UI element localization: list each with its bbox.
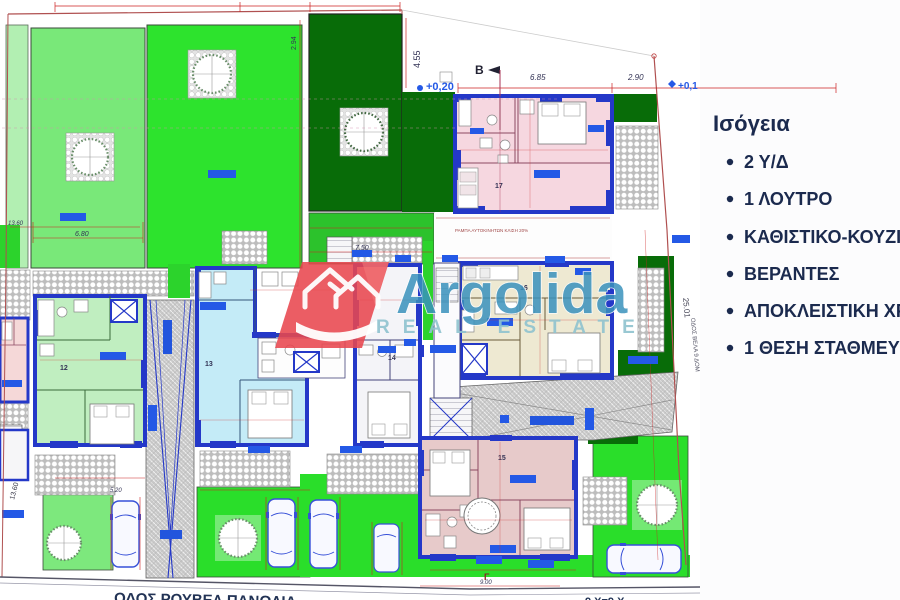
- svg-text:B: B: [475, 63, 484, 77]
- svg-text:+0,1: +0,1: [678, 81, 698, 92]
- svg-text:ΡΑΜΠΑ ΑΥΤΟΚΙΝΗΤΩΝ ΚΛΙΣΗ 20%: ΡΑΜΠΑ ΑΥΤΟΚΙΝΗΤΩΝ ΚΛΙΣΗ 20%: [455, 228, 528, 233]
- svg-text:17: 17: [495, 183, 503, 190]
- svg-text:25.01: 25.01: [681, 297, 692, 318]
- svg-text:Ισόγεια: Ισόγεια: [713, 111, 790, 136]
- svg-text:REAL ESTATE: REAL ESTATE: [376, 317, 648, 338]
- svg-text:4.55: 4.55: [412, 50, 422, 68]
- svg-text:13.60: 13.60: [8, 221, 24, 227]
- svg-text:ΚΑΘΙΣΤΙΚΟ-ΚΟΥΖΙΝΑ: ΚΑΘΙΣΤΙΚΟ-ΚΟΥΖΙΝΑ: [744, 227, 900, 247]
- svg-text:12: 12: [60, 365, 68, 372]
- svg-text:1 ΘΕΣΗ ΣΤΑΘΜΕΥΣΗΣ: 1 ΘΕΣΗ ΣΤΑΘΜΕΥΣΗΣ: [744, 338, 900, 358]
- svg-text:1 ΛΟΥΤΡΟ: 1 ΛΟΥΤΡΟ: [744, 189, 832, 209]
- svg-text:5.20: 5.20: [110, 488, 122, 494]
- svg-text:+0,20: +0,20: [426, 81, 454, 93]
- svg-text:13: 13: [205, 361, 213, 368]
- svg-text:2.94: 2.94: [291, 36, 298, 50]
- svg-text:15: 15: [498, 455, 506, 462]
- svg-text:2.90: 2.90: [627, 73, 644, 82]
- svg-text:6.85: 6.85: [530, 73, 546, 82]
- svg-text:ΑΠΟΚΛΕΙΣΤΙΚΗ ΧΡΗΣΗ: ΑΠΟΚΛΕΙΣΤΙΚΗ ΧΡΗΣΗ: [744, 301, 900, 321]
- svg-text:Γ: Γ: [484, 572, 490, 582]
- svg-text:2 Υ/Δ: 2 Υ/Δ: [744, 152, 789, 172]
- svg-text:6.80: 6.80: [75, 231, 89, 238]
- svg-text:ΒΕΡΑΝΤΕΣ: ΒΕΡΑΝΤΕΣ: [744, 264, 840, 284]
- svg-text:9 Χ=9 Χ: 9 Χ=9 Χ: [585, 596, 625, 600]
